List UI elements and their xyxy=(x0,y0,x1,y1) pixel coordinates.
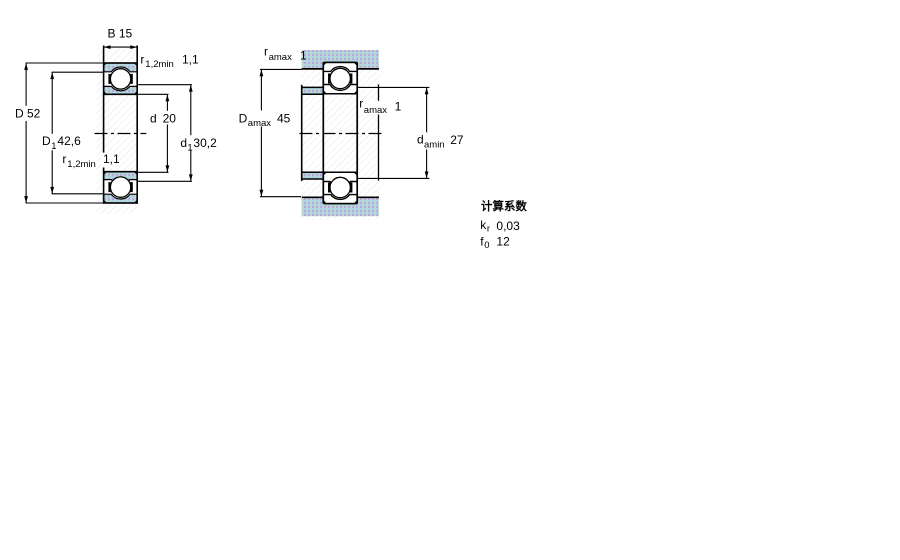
svg-text:1,2min: 1,2min xyxy=(145,59,174,70)
svg-text:1: 1 xyxy=(187,142,192,153)
svg-text:r: r xyxy=(359,97,363,111)
svg-text:20: 20 xyxy=(163,111,177,125)
svg-text:r: r xyxy=(264,45,268,59)
svg-text:1: 1 xyxy=(300,48,307,62)
svg-text:r: r xyxy=(487,224,490,235)
svg-text:30,2: 30,2 xyxy=(193,136,217,150)
svg-text:r: r xyxy=(140,52,144,66)
svg-text:amax: amax xyxy=(248,118,271,129)
svg-text:42,6: 42,6 xyxy=(57,134,81,148)
svg-text:1,1: 1,1 xyxy=(103,152,120,166)
svg-text:12: 12 xyxy=(496,234,510,248)
svg-text:d: d xyxy=(180,136,187,150)
svg-text:0: 0 xyxy=(484,240,489,251)
svg-text:amax: amax xyxy=(364,105,387,116)
svg-text:27: 27 xyxy=(450,133,464,147)
svg-text:1,2min: 1,2min xyxy=(67,159,96,170)
svg-text:d: d xyxy=(417,133,424,147)
svg-text:D: D xyxy=(239,111,248,125)
svg-text:45: 45 xyxy=(277,111,291,125)
svg-text:B 15: B 15 xyxy=(108,27,133,41)
svg-text:计算系数: 计算系数 xyxy=(481,199,527,213)
svg-text:0,03: 0,03 xyxy=(496,219,520,233)
svg-text:1: 1 xyxy=(51,141,56,152)
svg-text:amax: amax xyxy=(269,52,292,63)
svg-text:1,1: 1,1 xyxy=(182,53,199,67)
svg-text:D: D xyxy=(42,134,51,148)
svg-text:amin: amin xyxy=(424,140,445,151)
svg-text:1: 1 xyxy=(395,100,402,114)
svg-text:d: d xyxy=(150,111,157,125)
svg-text:D 52: D 52 xyxy=(15,107,41,121)
svg-text:r: r xyxy=(62,152,66,166)
